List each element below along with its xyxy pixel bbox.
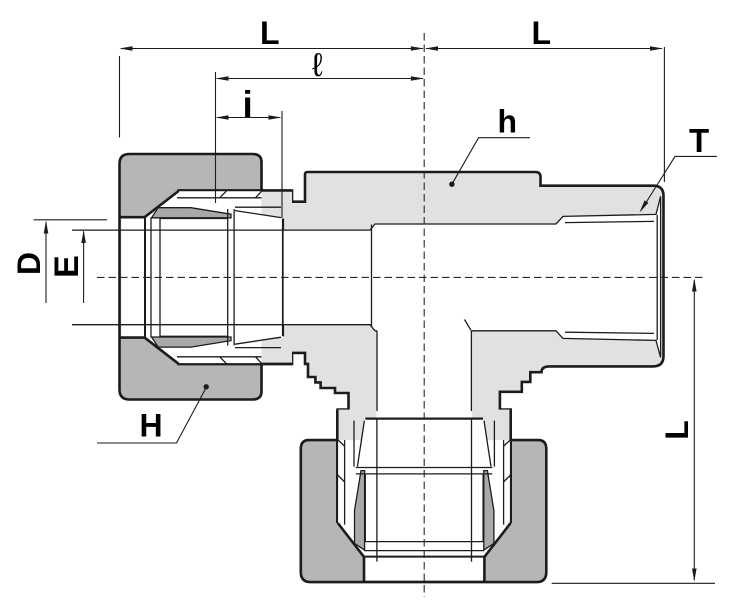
svg-text:L: L: [260, 15, 280, 51]
svg-text:L: L: [659, 420, 695, 440]
svg-text:E: E: [48, 255, 86, 278]
svg-text:H: H: [140, 408, 163, 444]
svg-text:i: i: [243, 84, 253, 125]
svg-text:h: h: [498, 104, 518, 140]
svg-text:T: T: [689, 122, 709, 159]
svg-text:ℓ: ℓ: [312, 46, 323, 83]
svg-text:L: L: [532, 15, 552, 51]
svg-text:D: D: [11, 252, 47, 275]
